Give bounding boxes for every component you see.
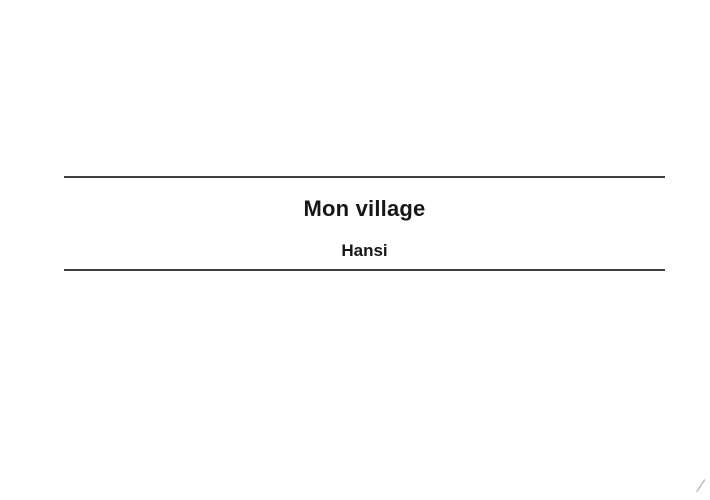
slide-subtitle: Hansi <box>64 240 665 261</box>
slide-canvas: Mon village Hansi <box>0 0 710 500</box>
title-top-rule <box>64 176 665 178</box>
resize-grip-icon[interactable] <box>692 476 710 496</box>
slide-title: Mon village <box>64 195 665 222</box>
title-bottom-rule <box>64 269 665 271</box>
resize-grip-stroke <box>697 480 705 492</box>
